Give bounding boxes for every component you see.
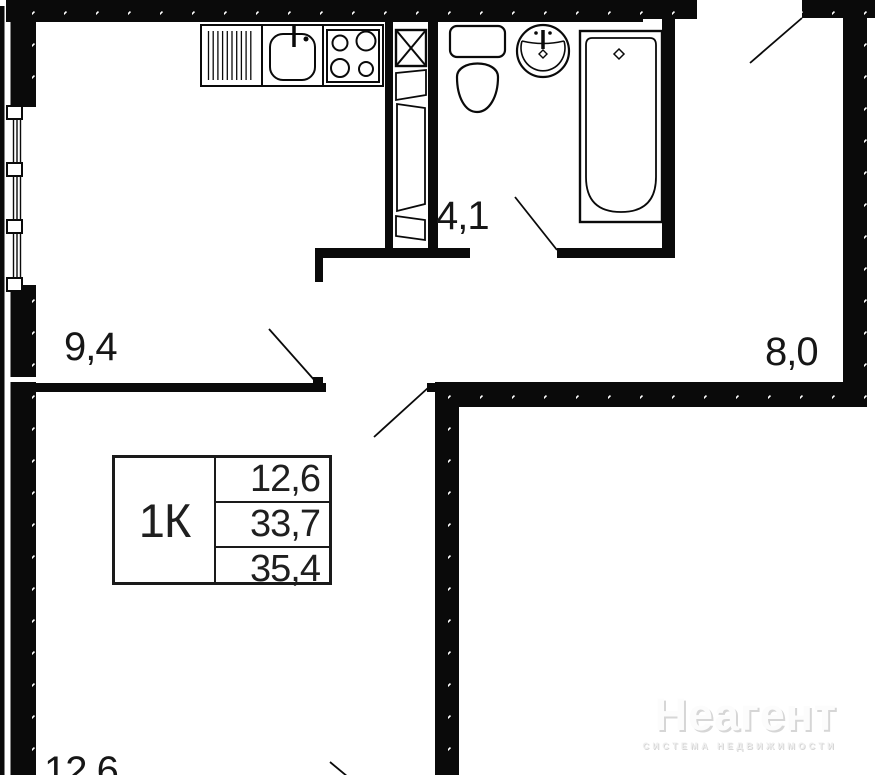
watermark-tagline: СИСТЕМА НЕДВИЖИМОСТИ (643, 741, 837, 751)
kitchen-partition-wall (35, 383, 326, 392)
toilet-icon (450, 26, 505, 112)
washbasin-icon (517, 25, 569, 77)
left-wall-outer-face (0, 6, 5, 775)
living-room-right-wall (435, 382, 459, 775)
interior-walls (35, 18, 867, 775)
left-wall-upper (11, 22, 37, 107)
hallway-area-label: 8,0 (765, 332, 818, 372)
left-wall-lower (11, 382, 37, 775)
bathtub-icon (580, 31, 662, 222)
kitchen-door-swing-line (269, 329, 316, 382)
apartment-info-table: 1К 12,6 33,7 35,4 (112, 455, 332, 585)
bathroom-door-swing-line (515, 197, 557, 250)
entrance-door-swing-line (750, 18, 802, 63)
living-room-area-label: 12,6 (44, 751, 118, 775)
ventilation-shaft-icon (396, 30, 426, 240)
floor-plan: 9,4 4,1 8,0 12,6 1К 12,6 33,7 35,4 Неаге… (0, 0, 875, 775)
watermark-brand: Неагент (643, 692, 837, 737)
kitchen-area-label: 9,4 (64, 327, 117, 367)
balcony-door-swing-line (330, 762, 348, 775)
wall-stub (315, 248, 323, 282)
bathroom-right-wall (662, 18, 675, 258)
unit-type-label: 1К (115, 458, 216, 582)
window-icon (7, 106, 22, 291)
living-area-value: 12,6 (216, 458, 329, 503)
window-mullion (7, 220, 22, 233)
entry-left-wall-block (643, 0, 697, 19)
bathroom-area-label: 4,1 (436, 196, 489, 236)
watermark: Неагент СИСТЕМА НЕДВИЖИМОСТИ (643, 692, 837, 751)
area-values-column: 12,6 33,7 35,4 (216, 458, 329, 582)
window-mullion (7, 278, 22, 291)
living-room-door-swing-line (374, 387, 429, 437)
kitchen-counter-icon (201, 25, 383, 86)
floor-plan-drawing (0, 0, 875, 775)
entry-right-wall-block (802, 0, 875, 18)
shaft-left-wall (385, 22, 393, 248)
full-area-value: 35,4 (216, 548, 329, 591)
top-wall (6, 0, 643, 22)
left-wall-middle (11, 285, 37, 377)
window-mullion (7, 163, 22, 176)
window-mullion (7, 106, 22, 119)
total-area-value: 33,7 (216, 503, 329, 548)
right-wall (843, 18, 867, 382)
hallway-bottom-wall (435, 382, 867, 407)
bathroom-bottom-wall (557, 248, 675, 258)
shaft-bottom-wall (315, 248, 470, 258)
